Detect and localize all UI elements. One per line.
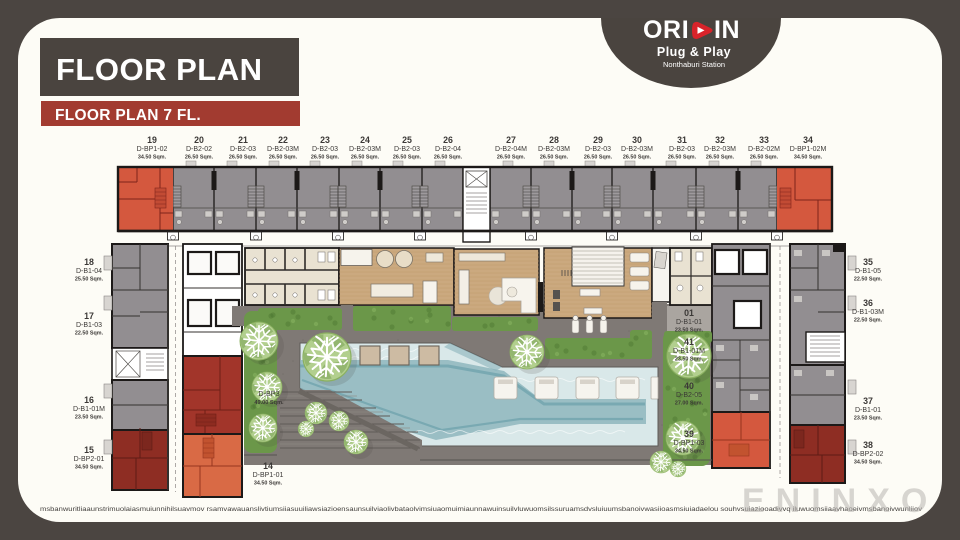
svg-text:ORI: ORI	[643, 16, 689, 44]
svg-text:41: 41	[684, 337, 694, 347]
svg-text:ENINXO: ENINXO	[742, 482, 938, 520]
svg-text:23.50 Sqm.: 23.50 Sqm.	[675, 357, 704, 363]
svg-text:26.50 Sqm.: 26.50 Sqm.	[623, 155, 652, 161]
svg-text:31: 31	[677, 135, 687, 145]
svg-text:D-B2-03M: D-B2-03M	[267, 146, 299, 153]
svg-text:IN: IN	[714, 16, 740, 44]
svg-text:27.00 Sqm.: 27.00 Sqm.	[675, 401, 704, 407]
svg-text:26.50 Sqm.: 26.50 Sqm.	[706, 155, 735, 161]
svg-text:D-B2-03: D-B2-03	[669, 146, 695, 153]
svg-text:D-B2-03M: D-B2-03M	[538, 146, 570, 153]
svg-text:34.50 Sqm.: 34.50 Sqm.	[75, 465, 104, 471]
svg-text:D-B2-03M: D-B2-03M	[704, 146, 736, 153]
svg-text:15: 15	[84, 445, 94, 455]
svg-text:34.50 Sqm.: 34.50 Sqm.	[675, 449, 704, 455]
svg-text:17: 17	[84, 311, 94, 321]
svg-text:25.50 Sqm.: 25.50 Sqm.	[75, 277, 104, 283]
svg-text:32: 32	[715, 135, 725, 145]
svg-text:14: 14	[263, 461, 273, 471]
svg-text:D-B1-01M: D-B1-01M	[673, 348, 705, 355]
svg-text:26.50 Sqm.: 26.50 Sqm.	[393, 155, 422, 161]
svg-text:23.50 Sqm.: 23.50 Sqm.	[75, 415, 104, 421]
svg-text:26.50 Sqm.: 26.50 Sqm.	[269, 155, 298, 161]
svg-text:34.50 Sqm.: 34.50 Sqm.	[138, 155, 167, 161]
svg-text:D-BP1-01: D-BP1-01	[253, 472, 284, 479]
svg-text:26.50 Sqm.: 26.50 Sqm.	[351, 155, 380, 161]
svg-text:34: 34	[803, 135, 813, 145]
svg-text:34.50 Sqm.: 34.50 Sqm.	[794, 155, 823, 161]
svg-text:D-B2-03: D-B2-03	[230, 146, 256, 153]
svg-text:D-BP1-02: D-BP1-02	[137, 146, 168, 153]
svg-text:23.50 Sqm.: 23.50 Sqm.	[854, 416, 883, 422]
svg-text:38: 38	[863, 440, 873, 450]
svg-text:D-B2-04M: D-B2-04M	[495, 146, 527, 153]
svg-text:36: 36	[863, 298, 873, 308]
svg-text:D-BP3: D-BP3	[258, 389, 279, 398]
svg-text:D-B2-02: D-B2-02	[186, 146, 212, 153]
svg-text:D-B2-03M: D-B2-03M	[621, 146, 653, 153]
svg-text:49.00 Sqm.: 49.00 Sqm.	[254, 400, 284, 406]
svg-text:22.50 Sqm.: 22.50 Sqm.	[854, 277, 883, 283]
svg-text:23: 23	[320, 135, 330, 145]
svg-text:22.50 Sqm.: 22.50 Sqm.	[75, 331, 104, 337]
svg-text:29: 29	[593, 135, 603, 145]
svg-text:26.50 Sqm.: 26.50 Sqm.	[311, 155, 340, 161]
svg-text:19: 19	[147, 135, 157, 145]
svg-text:39: 39	[684, 429, 694, 439]
svg-text:D-B2-03: D-B2-03	[394, 146, 420, 153]
svg-text:D-B1-01M: D-B1-01M	[73, 406, 105, 413]
svg-text:D-B1-04: D-B1-04	[76, 268, 102, 275]
svg-text:26.50 Sqm.: 26.50 Sqm.	[750, 155, 779, 161]
svg-text:D-BP1-03: D-BP1-03	[674, 440, 705, 447]
svg-text:16: 16	[84, 395, 94, 405]
svg-text:26.50 Sqm.: 26.50 Sqm.	[434, 155, 463, 161]
svg-text:D-B2-03: D-B2-03	[585, 146, 611, 153]
svg-text:27: 27	[506, 135, 516, 145]
svg-text:D-BP1-02M: D-BP1-02M	[790, 146, 827, 153]
svg-text:33: 33	[759, 135, 769, 145]
svg-text:FLOOR PLAN: FLOOR PLAN	[56, 52, 263, 87]
svg-text:01: 01	[684, 308, 694, 318]
svg-text:26.50 Sqm.: 26.50 Sqm.	[584, 155, 613, 161]
svg-text:Plug & Play: Plug & Play	[657, 45, 731, 59]
svg-text:D-B2-04: D-B2-04	[435, 146, 461, 153]
svg-text:20: 20	[194, 135, 204, 145]
svg-text:26.50 Sqm.: 26.50 Sqm.	[540, 155, 569, 161]
svg-text:30: 30	[632, 135, 642, 145]
svg-text:D-B1-05: D-B1-05	[855, 268, 881, 275]
svg-text:26: 26	[443, 135, 453, 145]
svg-text:22.50 Sqm.: 22.50 Sqm.	[854, 318, 883, 324]
svg-text:23.50 Sqm.: 23.50 Sqm.	[675, 328, 704, 334]
svg-text:24: 24	[360, 135, 370, 145]
svg-text:21: 21	[238, 135, 248, 145]
svg-text:D-B1-01: D-B1-01	[855, 407, 881, 414]
svg-text:25: 25	[402, 135, 412, 145]
svg-text:26.50 Sqm.: 26.50 Sqm.	[229, 155, 258, 161]
svg-text:D-B2-03: D-B2-03	[312, 146, 338, 153]
svg-text:18: 18	[84, 257, 94, 267]
svg-text:D-BP2-01: D-BP2-01	[74, 456, 105, 463]
svg-text:D-B1-03: D-B1-03	[76, 322, 102, 329]
svg-text:Nonthaburi Station: Nonthaburi Station	[663, 60, 725, 69]
svg-text:D-B2-02M: D-B2-02M	[748, 146, 780, 153]
svg-text:D-BP2-02: D-BP2-02	[853, 451, 884, 458]
svg-text:D-B2-03M: D-B2-03M	[349, 146, 381, 153]
svg-text:26.50 Sqm.: 26.50 Sqm.	[497, 155, 526, 161]
svg-text:26.50 Sqm.: 26.50 Sqm.	[668, 155, 697, 161]
svg-text:D-B1-01: D-B1-01	[676, 319, 702, 326]
svg-text:37: 37	[863, 396, 873, 406]
svg-text:FLOOR PLAN 7 FL.: FLOOR PLAN 7 FL.	[55, 107, 201, 124]
svg-text:34.50 Sqm.: 34.50 Sqm.	[854, 460, 883, 466]
svg-text:34.50 Sqm.: 34.50 Sqm.	[254, 481, 283, 487]
svg-text:22: 22	[278, 135, 288, 145]
svg-text:40: 40	[684, 381, 694, 391]
svg-text:28: 28	[549, 135, 559, 145]
svg-text:26.50 Sqm.: 26.50 Sqm.	[185, 155, 214, 161]
svg-text:35: 35	[863, 257, 873, 267]
svg-text:D-B2-05: D-B2-05	[676, 392, 702, 399]
svg-text:D-B1-03M: D-B1-03M	[852, 309, 884, 316]
